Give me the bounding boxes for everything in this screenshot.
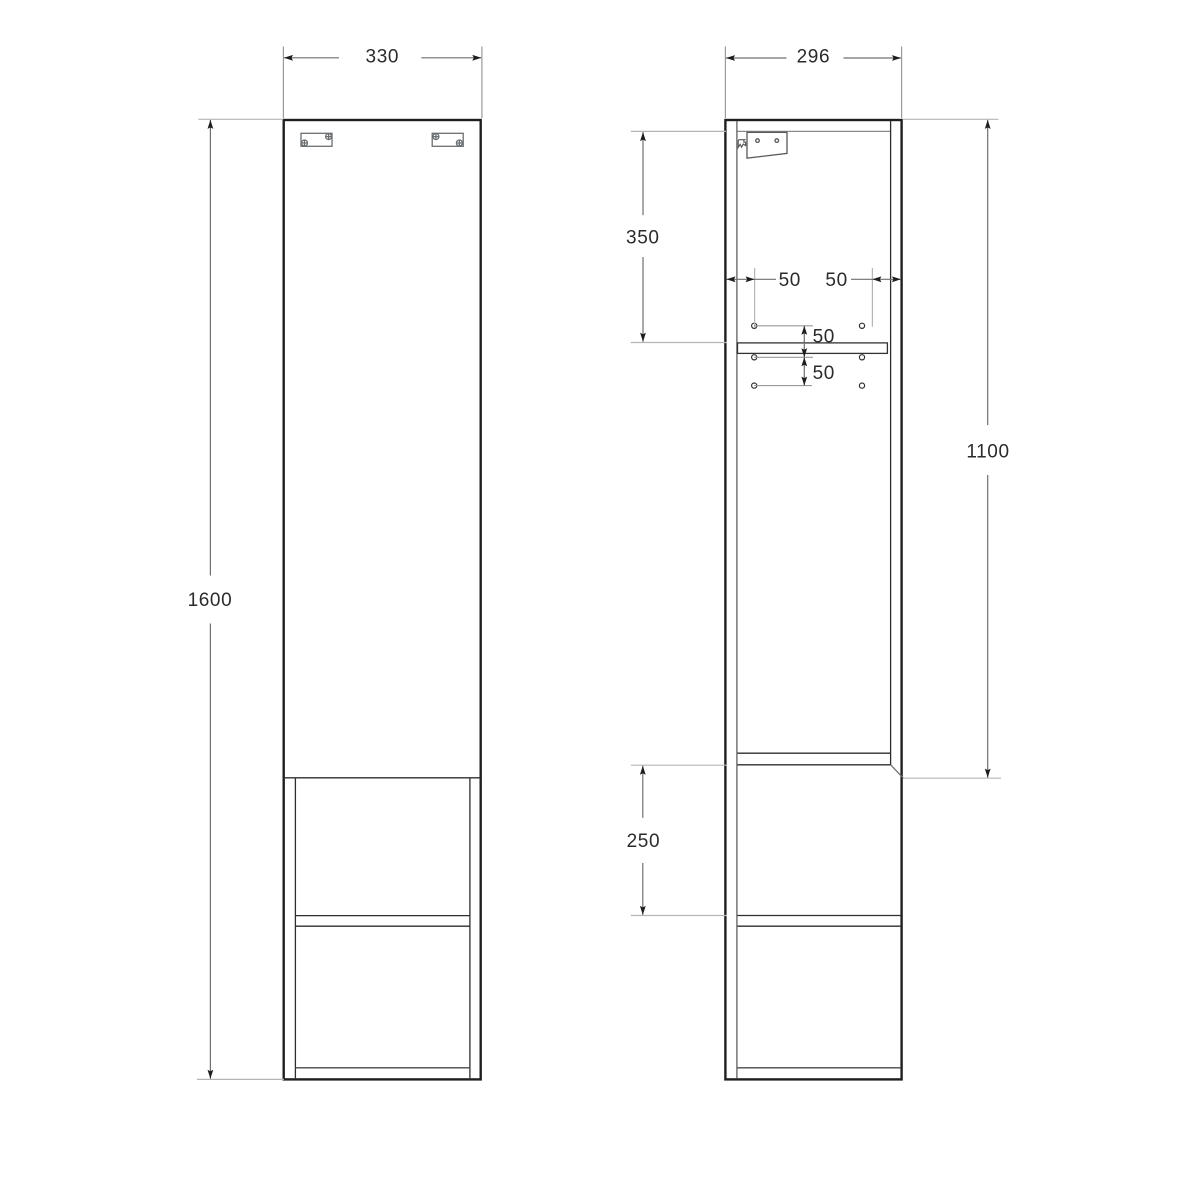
svg-text:250: 250 xyxy=(627,831,661,852)
svg-text:350: 350 xyxy=(626,228,660,249)
svg-text:330: 330 xyxy=(366,46,400,67)
svg-text:50: 50 xyxy=(825,270,847,291)
svg-text:296: 296 xyxy=(797,46,831,67)
svg-text:50: 50 xyxy=(813,363,835,384)
svg-text:1100: 1100 xyxy=(966,441,1009,462)
svg-text:50: 50 xyxy=(813,327,835,348)
svg-text:1600: 1600 xyxy=(188,590,233,611)
svg-text:50: 50 xyxy=(779,270,801,291)
